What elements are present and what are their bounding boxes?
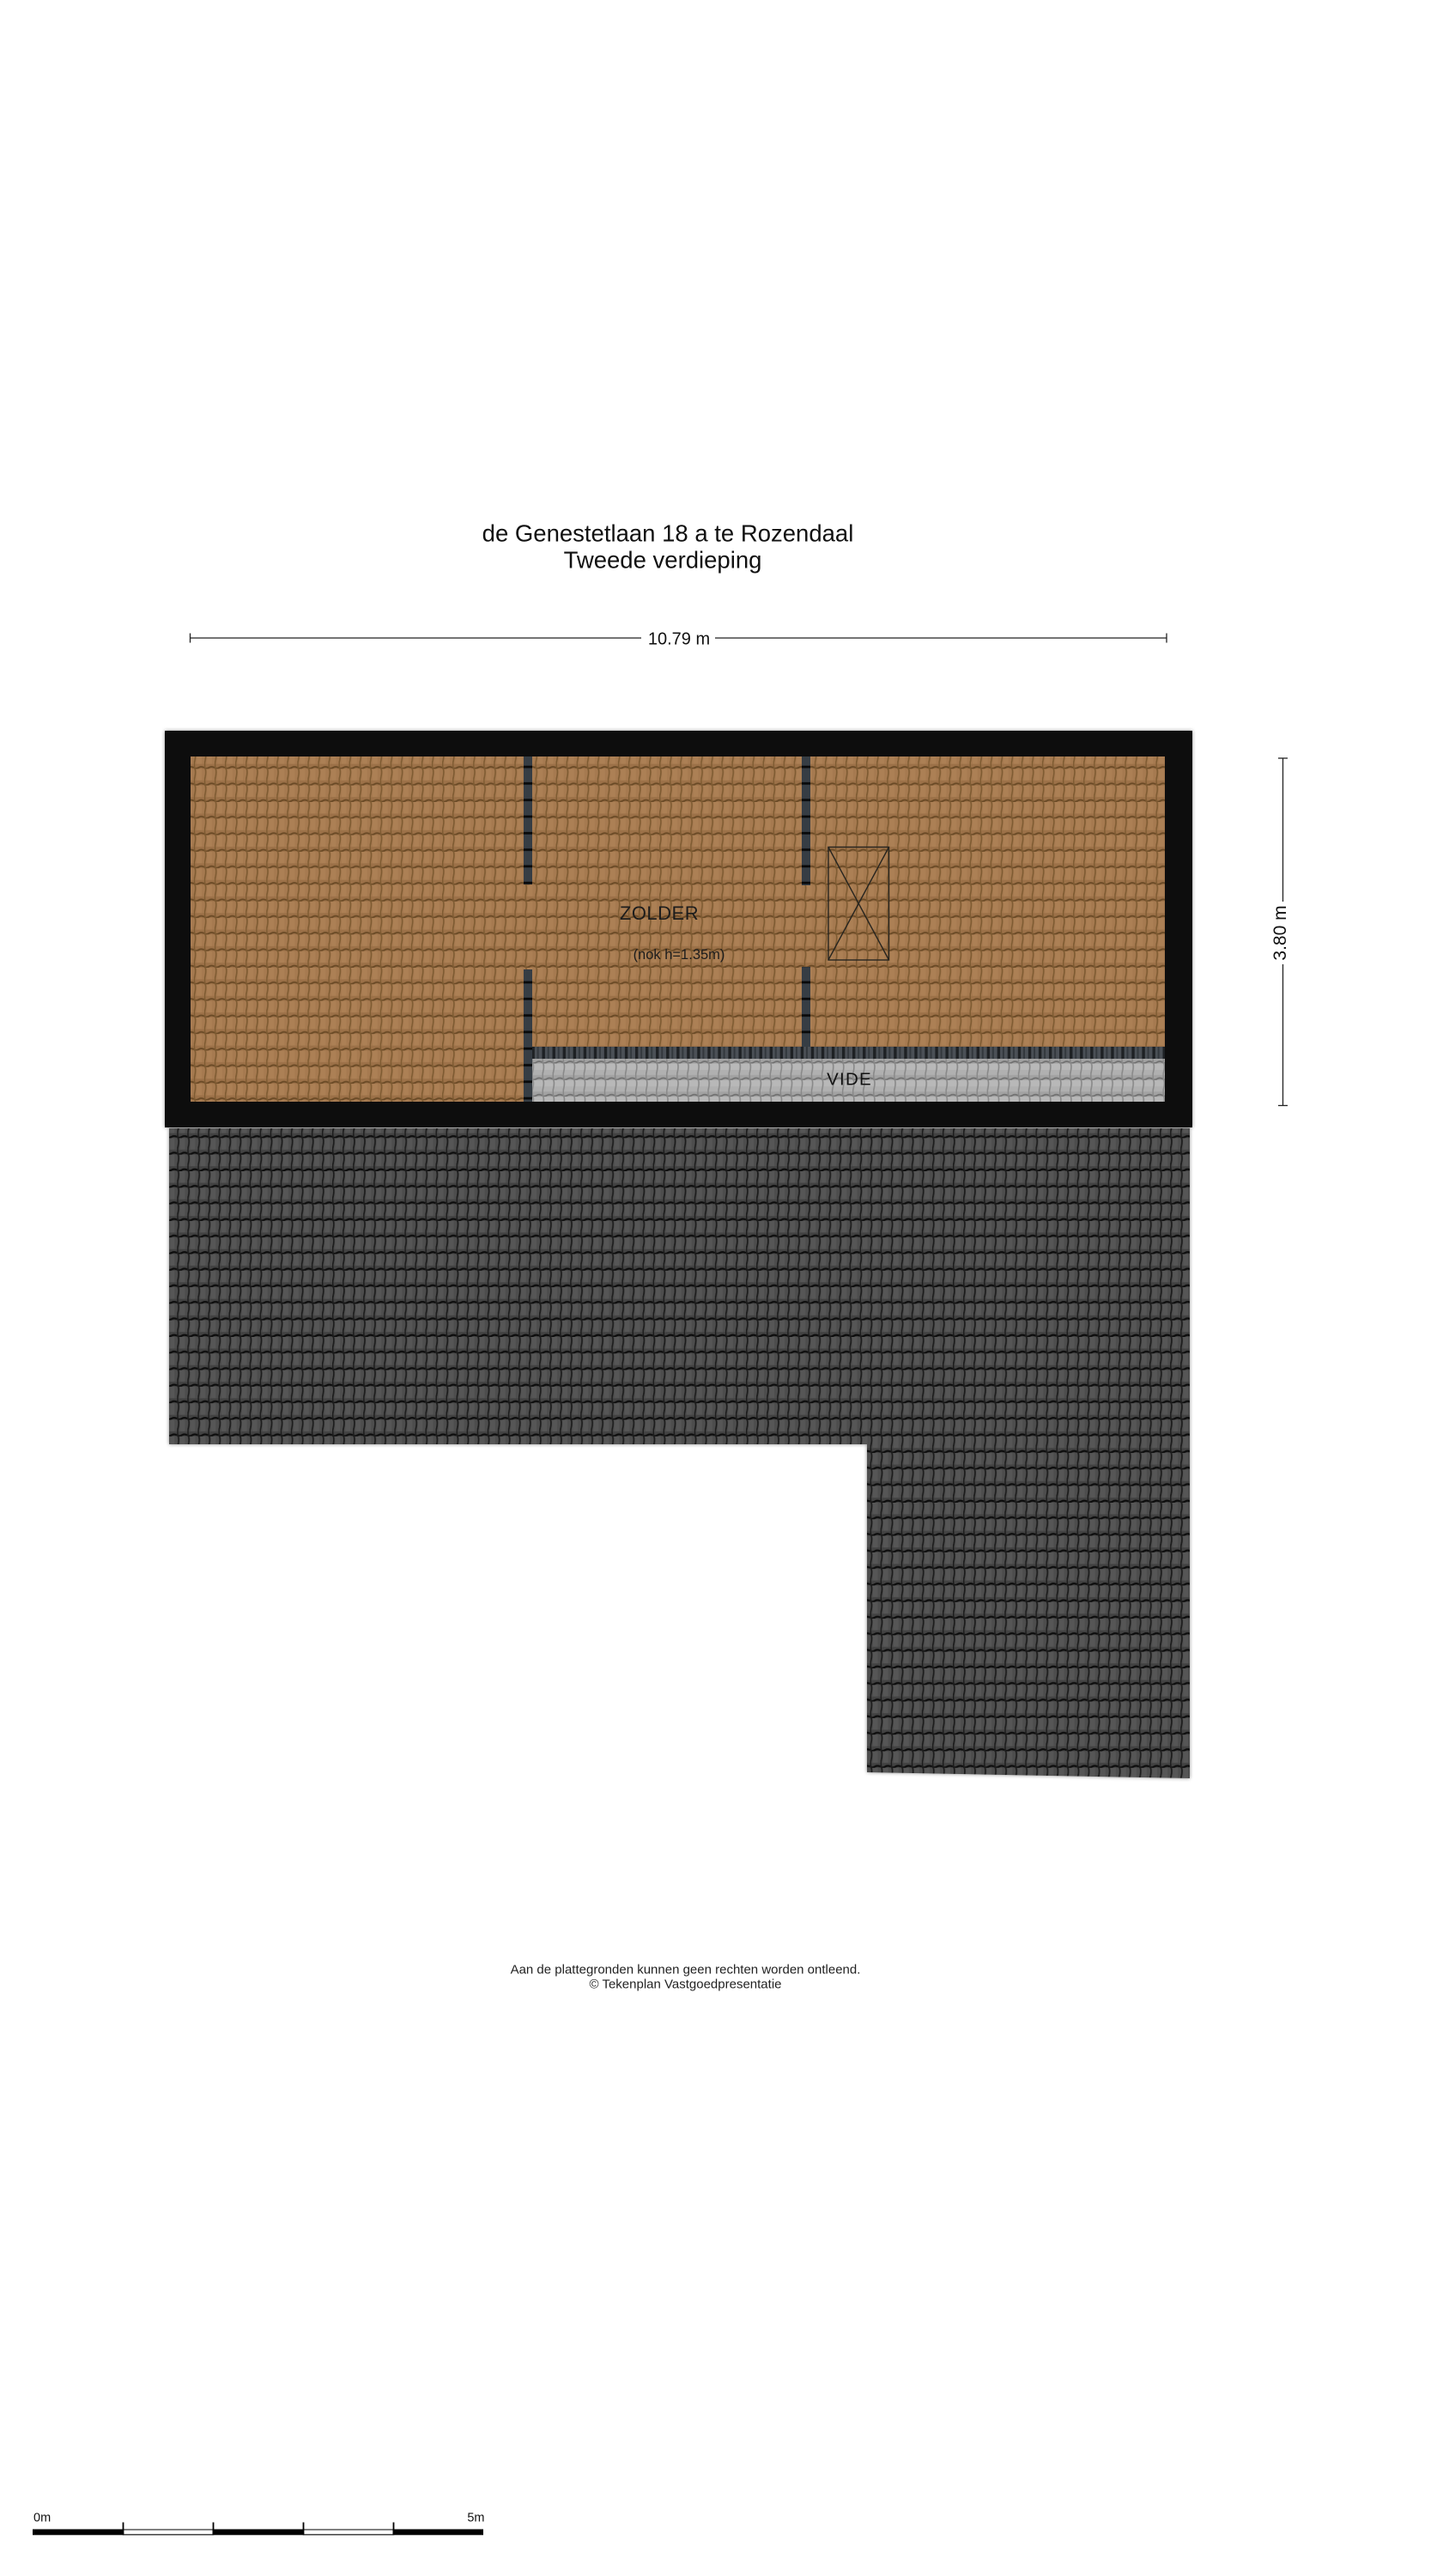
svg-text:ZOLDER: ZOLDER — [620, 902, 699, 924]
svg-text:5m: 5m — [467, 2512, 484, 2525]
svg-text:de Genestetlaan 18 a te Rozend: de Genestetlaan 18 a te Rozendaal — [482, 520, 854, 547]
svg-text:(nok h=1.35m): (nok h=1.35m) — [634, 947, 725, 963]
svg-text:Aan de plattegronden kunnen ge: Aan de plattegronden kunnen geen rechten… — [511, 1963, 861, 1978]
svg-text:Tweede verdieping: Tweede verdieping — [564, 547, 762, 574]
svg-text:10.79 m: 10.79 m — [648, 630, 710, 649]
svg-text:0m: 0m — [33, 2512, 51, 2525]
svg-text:© Tekenplan Vastgoedpresentati: © Tekenplan Vastgoedpresentatie — [590, 1978, 782, 1992]
svg-text:3.80 m: 3.80 m — [1270, 905, 1290, 960]
svg-text:VIDE: VIDE — [827, 1070, 872, 1090]
